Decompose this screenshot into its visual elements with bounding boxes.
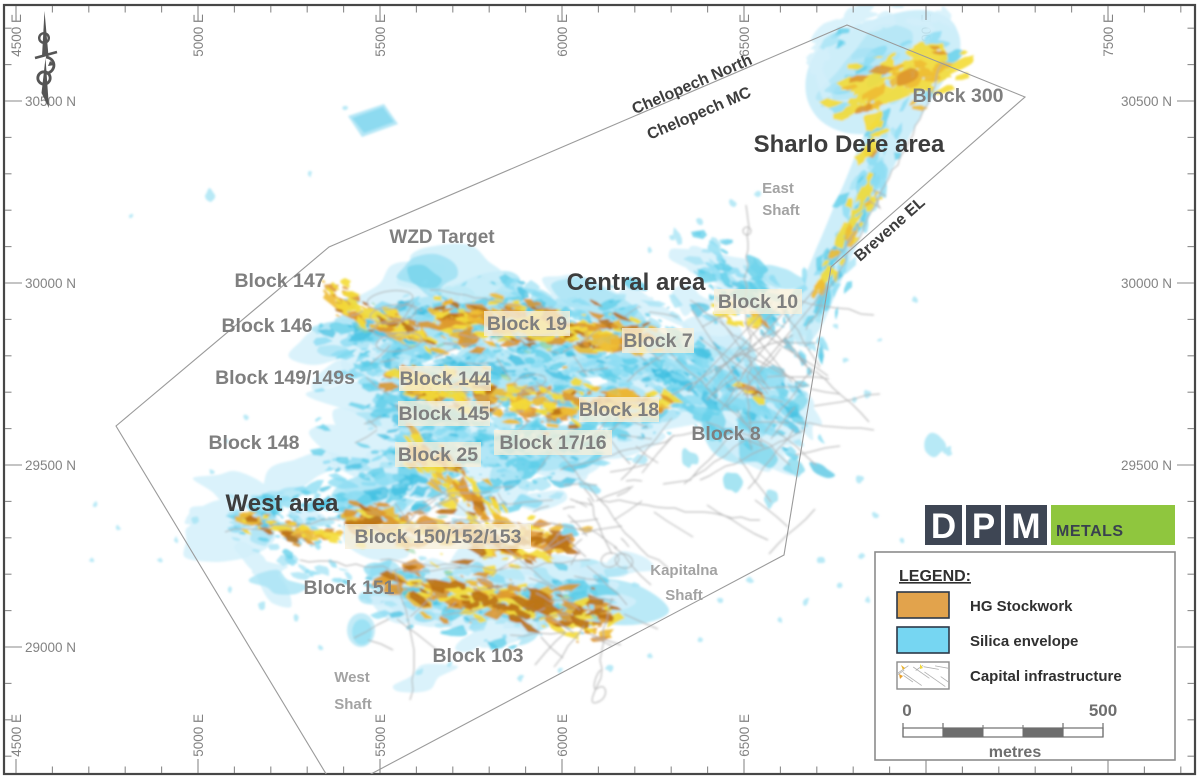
- svg-text:30500 N: 30500 N: [25, 94, 76, 109]
- svg-text:7500 E: 7500 E: [1101, 14, 1116, 57]
- svg-text:5500 E: 5500 E: [373, 714, 388, 757]
- svg-text:Capital infrastructure: Capital infrastructure: [970, 668, 1122, 685]
- svg-text:Block 103: Block 103: [432, 645, 523, 667]
- svg-text:Block 19: Block 19: [487, 313, 567, 335]
- svg-text:Block 8: Block 8: [691, 423, 761, 445]
- svg-text:6500 E: 6500 E: [737, 714, 752, 757]
- svg-text:30000 N: 30000 N: [25, 276, 76, 291]
- svg-text:30500 N: 30500 N: [1121, 94, 1172, 109]
- svg-text:500: 500: [1089, 701, 1117, 720]
- svg-text:29500 N: 29500 N: [25, 458, 76, 473]
- svg-text:Block 7: Block 7: [623, 330, 692, 352]
- svg-text:5500 E: 5500 E: [373, 14, 388, 57]
- svg-text:6000 E: 6000 E: [555, 14, 570, 57]
- svg-text:Block 148: Block 148: [208, 432, 299, 454]
- svg-text:METALS: METALS: [1056, 523, 1124, 540]
- svg-text:6000 E: 6000 E: [555, 714, 570, 757]
- svg-text:Block 145: Block 145: [398, 403, 489, 425]
- svg-text:5000 E: 5000 E: [191, 714, 206, 757]
- svg-text:West: West: [334, 669, 370, 686]
- svg-text:Shaft: Shaft: [665, 587, 703, 604]
- svg-text:WZD Target: WZD Target: [389, 227, 495, 248]
- svg-text:5000 E: 5000 E: [191, 14, 206, 57]
- svg-text:Block 146: Block 146: [221, 315, 312, 337]
- svg-text:Block 151: Block 151: [303, 577, 394, 599]
- svg-text:Block 10: Block 10: [718, 291, 798, 313]
- svg-text:Block 144: Block 144: [399, 368, 490, 390]
- svg-text:4500 E: 4500 E: [9, 714, 24, 757]
- svg-text:Silica envelope: Silica envelope: [970, 633, 1078, 650]
- svg-text:Kapitalna: Kapitalna: [650, 562, 718, 579]
- svg-text:30000 N: 30000 N: [1121, 276, 1172, 291]
- svg-text:Block 147: Block 147: [234, 270, 325, 292]
- svg-text:West area: West area: [226, 490, 340, 517]
- svg-text:29500 N: 29500 N: [1121, 458, 1172, 473]
- svg-text:P: P: [972, 507, 995, 546]
- svg-text:M: M: [1011, 507, 1040, 546]
- svg-text:6500 E: 6500 E: [737, 14, 752, 57]
- svg-text:Block 17/16: Block 17/16: [499, 432, 606, 454]
- svg-text:Shaft: Shaft: [334, 696, 372, 713]
- svg-text:Shaft: Shaft: [762, 202, 800, 219]
- svg-text:Block 150/152/153: Block 150/152/153: [355, 526, 522, 548]
- svg-text:HG Stockwork: HG Stockwork: [970, 598, 1073, 615]
- svg-text:D: D: [931, 507, 956, 546]
- svg-text:4500 E: 4500 E: [9, 14, 24, 57]
- svg-text:Block 300: Block 300: [912, 85, 1003, 107]
- svg-text:29000 N: 29000 N: [25, 640, 76, 655]
- svg-text:Block 25: Block 25: [398, 444, 478, 466]
- svg-text:LEGEND:: LEGEND:: [899, 568, 971, 585]
- svg-text:Sharlo Dere area: Sharlo Dere area: [754, 131, 945, 158]
- svg-text:metres: metres: [989, 744, 1042, 761]
- svg-text:Block 149/149s: Block 149/149s: [215, 367, 355, 389]
- svg-text:East: East: [762, 180, 794, 197]
- svg-text:Block 18: Block 18: [579, 399, 659, 421]
- svg-text:Central area: Central area: [567, 269, 706, 296]
- svg-text:0: 0: [902, 701, 911, 720]
